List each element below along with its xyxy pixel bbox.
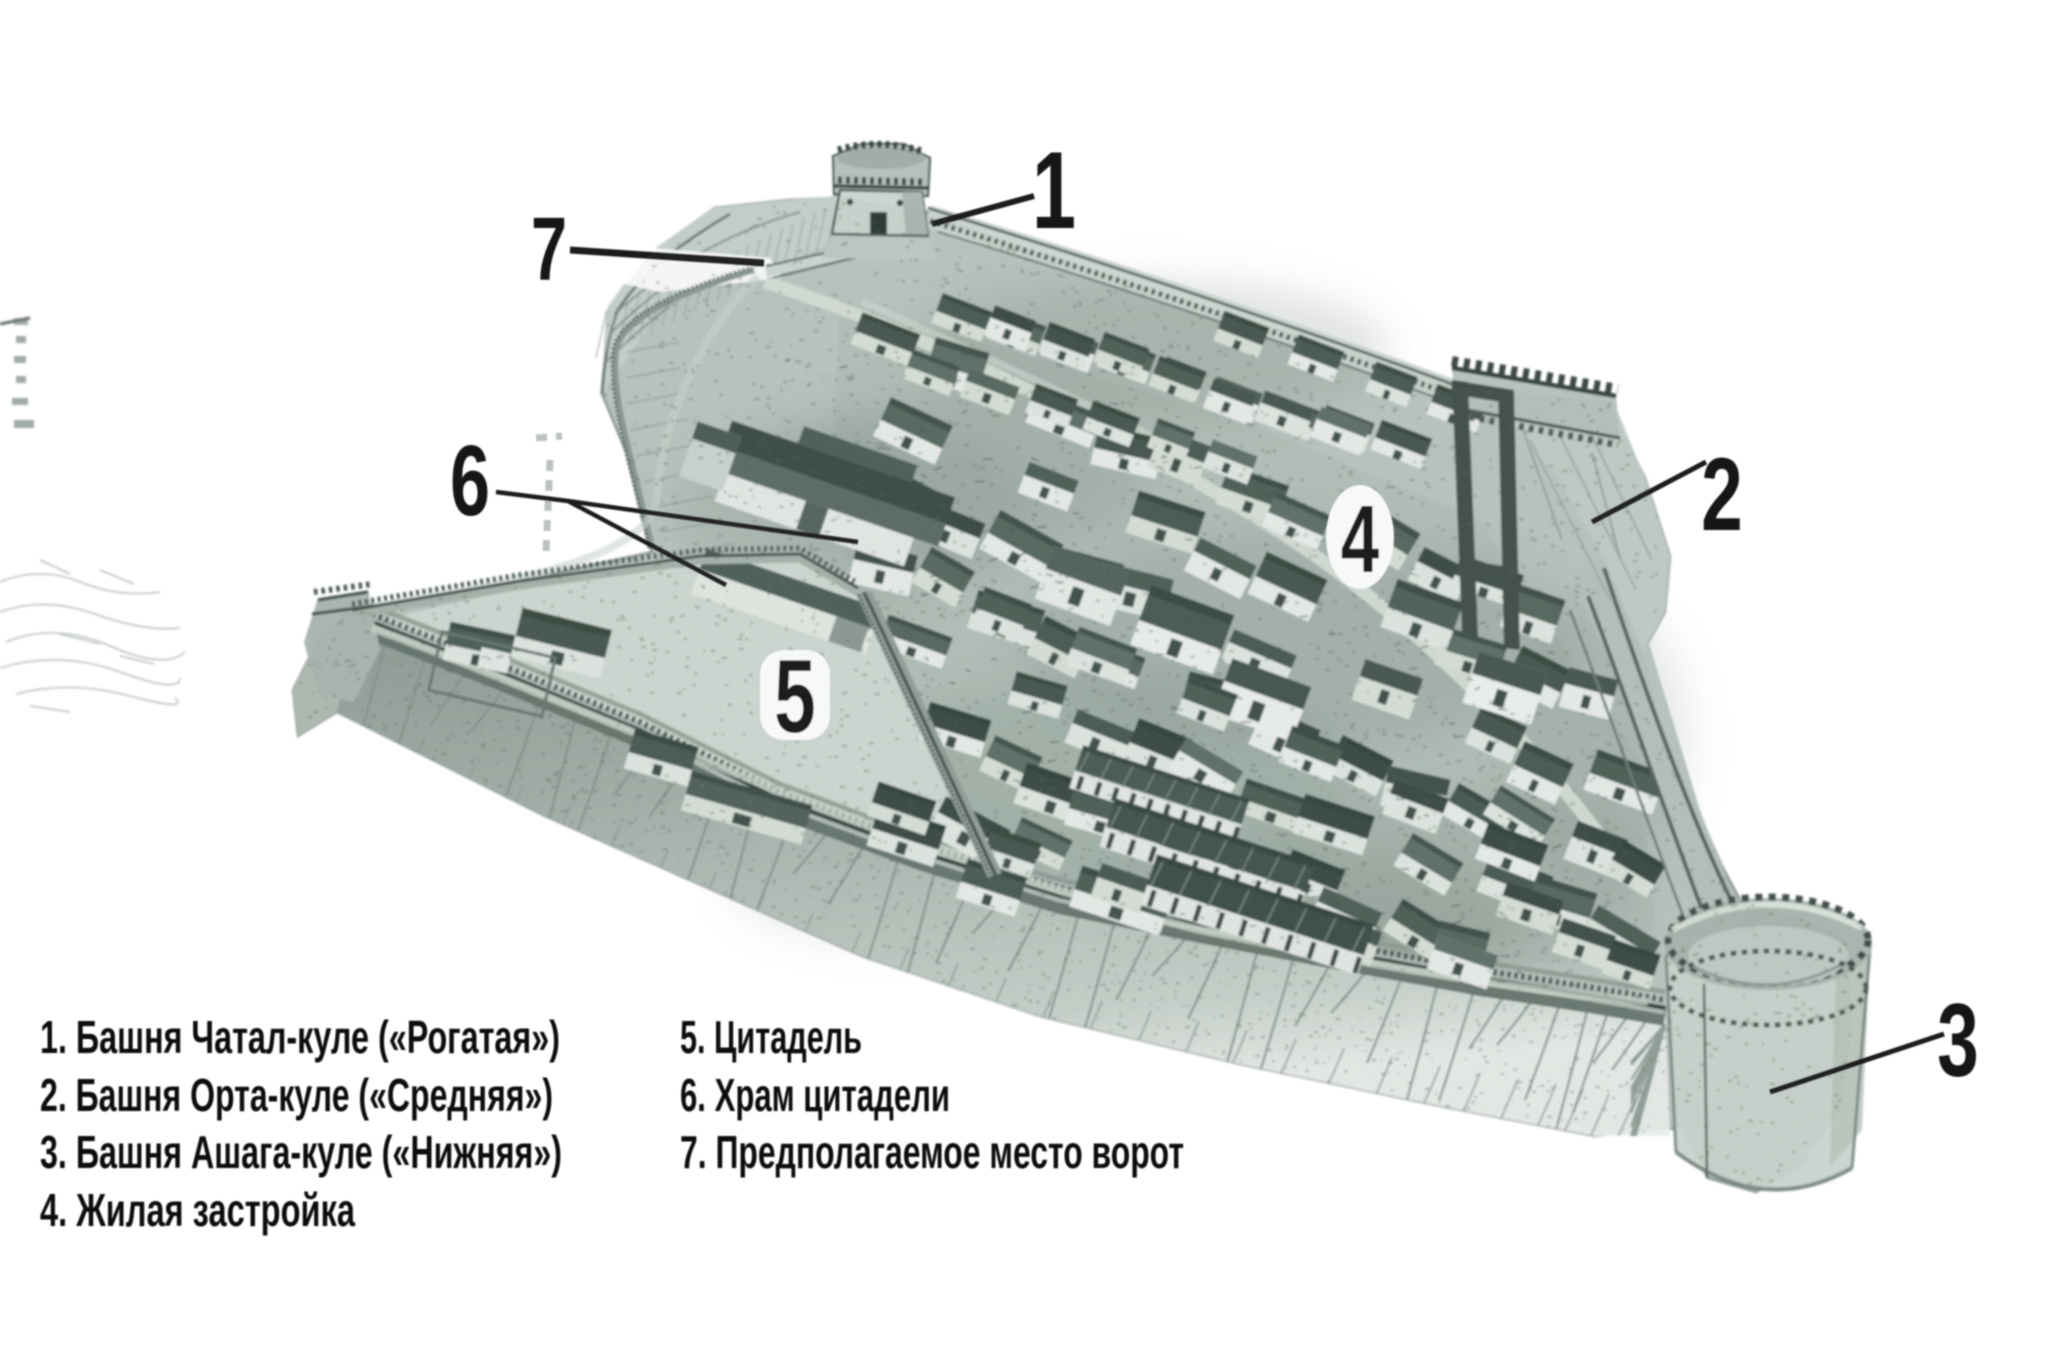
svg-text:2: 2 [1701,437,1743,553]
svg-text:3: 3 [1937,983,1979,1099]
svg-text:7. Предполагаемое место ворот: 7. Предполагаемое место ворот [680,1126,1184,1178]
svg-text:3. Башня Ашага-куле («Нижняя»): 3. Башня Ашага-куле («Нижняя») [40,1126,562,1178]
svg-text:6. Храм цитадели: 6. Храм цитадели [680,1069,950,1121]
svg-text:1. Башня Чатал-куле («Рогатая: 1. Башня Чатал-куле («Рогатая») [40,1011,560,1063]
svg-text:6: 6 [450,425,490,536]
svg-text:1: 1 [1032,129,1076,252]
svg-text:2. Башня Орта-куле («Средняя»): 2. Башня Орта-куле («Средняя») [40,1069,553,1121]
svg-text:4. Жилая застройка: 4. Жилая застройка [40,1184,355,1236]
svg-text:7: 7 [531,199,567,300]
svg-text:5. Цитадель: 5. Цитадель [680,1011,862,1063]
